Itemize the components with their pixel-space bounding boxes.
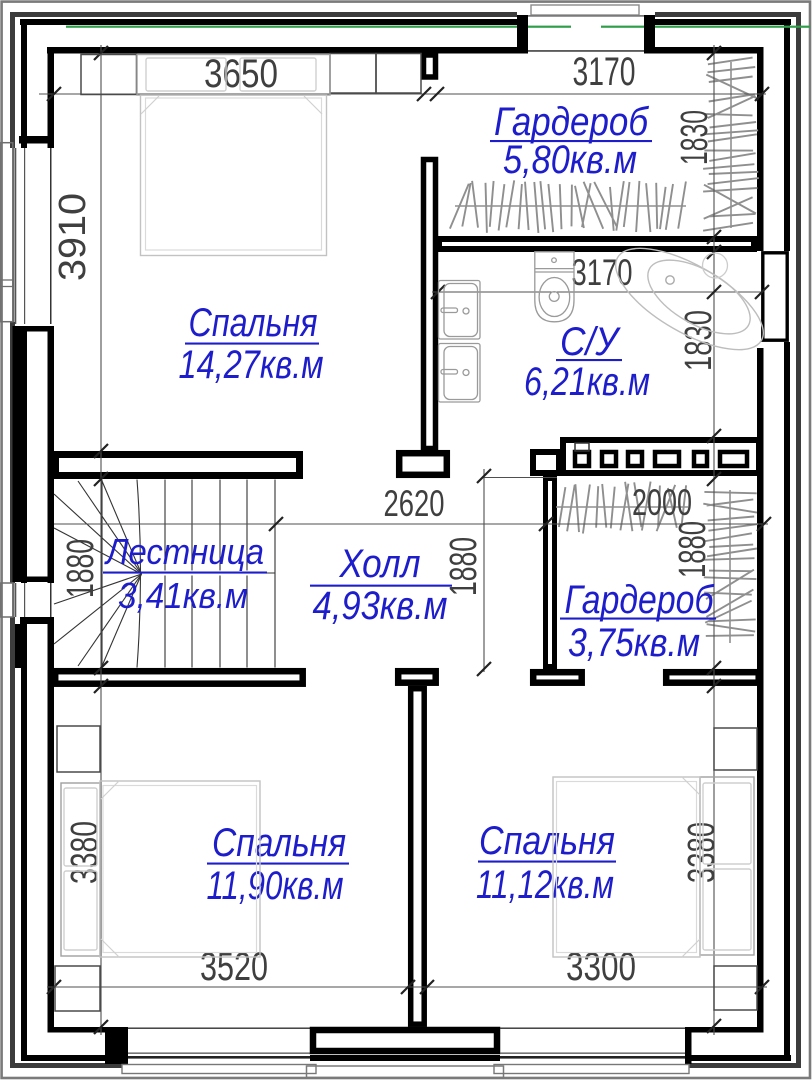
- svg-text:1880: 1880: [443, 537, 485, 596]
- svg-text:4,93кв.м: 4,93кв.м: [313, 584, 448, 628]
- svg-text:3,41кв.м: 3,41кв.м: [118, 575, 248, 616]
- svg-text:1830: 1830: [674, 110, 716, 165]
- svg-text:3,75кв.м: 3,75кв.м: [568, 621, 700, 665]
- svg-text:3300: 3300: [566, 945, 636, 989]
- svg-text:С/У: С/У: [560, 320, 621, 364]
- svg-text:Гардероб: Гардероб: [565, 578, 715, 622]
- svg-text:6,21кв.м: 6,21кв.м: [524, 360, 650, 404]
- svg-text:Лестница: Лестница: [104, 531, 264, 572]
- svg-text:14,27кв.м: 14,27кв.м: [179, 343, 324, 387]
- svg-text:1880: 1880: [672, 521, 714, 578]
- svg-text:11,90кв.м: 11,90кв.м: [207, 864, 344, 908]
- svg-text:5,80кв.м: 5,80кв.м: [503, 138, 637, 182]
- svg-text:Спальня: Спальня: [479, 819, 615, 863]
- svg-text:3170: 3170: [572, 252, 633, 293]
- svg-text:Спальня: Спальня: [189, 301, 318, 345]
- svg-text:3910: 3910: [52, 193, 94, 281]
- svg-text:Спальня: Спальня: [212, 821, 346, 865]
- svg-text:3520: 3520: [200, 945, 268, 989]
- svg-text:Холл: Холл: [339, 542, 421, 586]
- svg-text:11,12кв.м: 11,12кв.м: [476, 863, 614, 907]
- svg-text:3170: 3170: [573, 50, 636, 94]
- svg-text:1880: 1880: [60, 539, 102, 598]
- svg-text:2000: 2000: [632, 482, 692, 523]
- svg-text:3380: 3380: [681, 822, 723, 883]
- svg-text:2620: 2620: [384, 483, 445, 524]
